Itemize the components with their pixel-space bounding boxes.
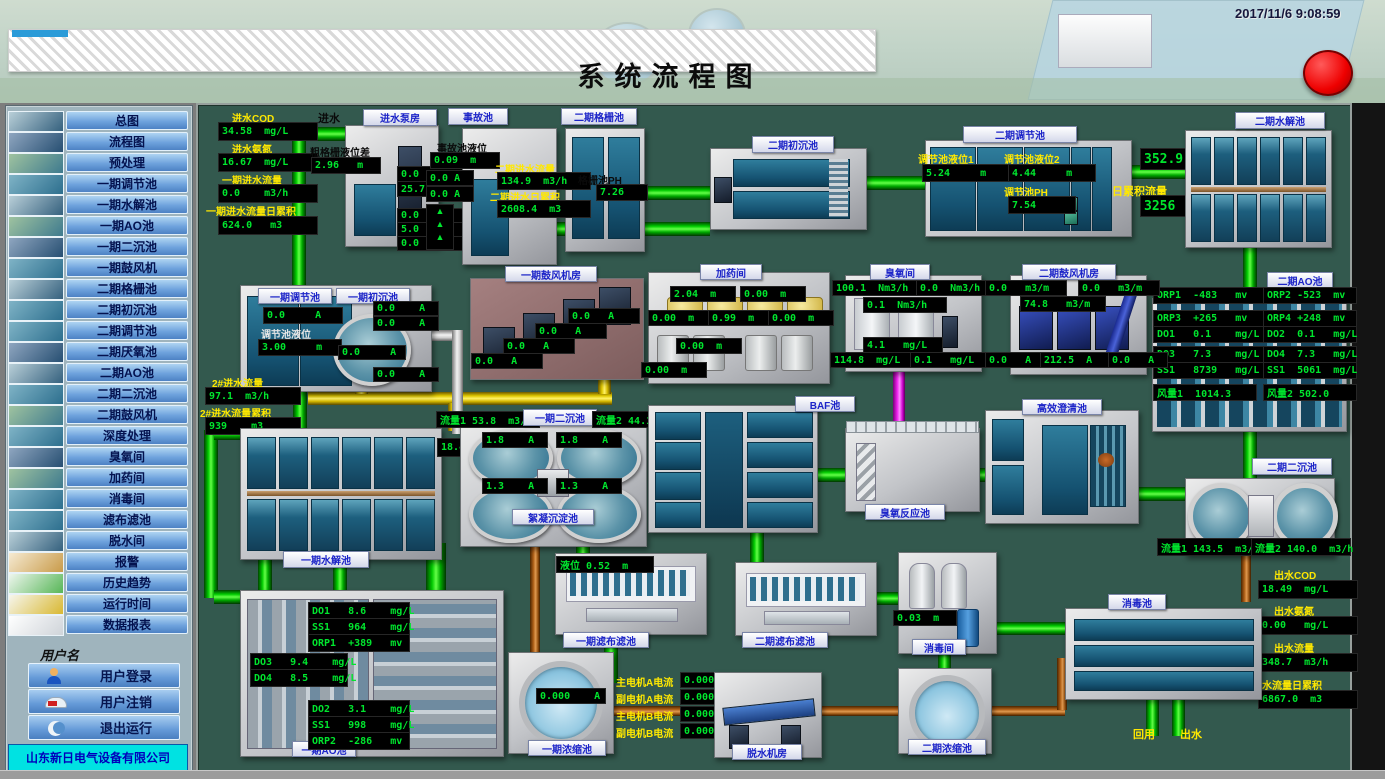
p1-presettle-amp: 0.0 A [373, 316, 439, 331]
p1-sec-amp: 1.8 A [556, 432, 622, 448]
p2-blower-amp: 212.5 A [1040, 352, 1112, 368]
ozone-flow: 0.1 Nm3/h [863, 297, 947, 313]
baf-pool[interactable] [648, 405, 818, 533]
disinfect-room-plate[interactable]: 消毒间 [912, 639, 966, 655]
p1-reg-level: 3.00 m [258, 339, 342, 356]
ozone-flow: 100.1 Nm3/h [832, 280, 922, 296]
sidebar-item-dosing-room[interactable]: 加药间 [8, 468, 188, 487]
p2-blower-flow: 0.0 m3/m [1078, 280, 1160, 296]
pipe-green [258, 558, 272, 594]
sidebar-item-p1-regulating[interactable]: 一期调节池 [8, 174, 188, 193]
sidebar-item-runtime[interactable]: 运行时间 [8, 594, 188, 613]
coarse-screen-level: 2.96 m [311, 157, 381, 174]
baf-plate[interactable]: BAF池 [795, 396, 855, 412]
p1-filter-level: 液位 0.52 m [556, 556, 654, 573]
sidebar-item-cloth-filter[interactable]: 滤布滤池 [8, 510, 188, 529]
p2-ao-orp4: ORP4 +248 mv [1263, 310, 1357, 327]
sidebar-item-data-report[interactable]: 数据报表 [8, 615, 188, 634]
motor-label: 副电机B电流 [616, 725, 673, 740]
sidebar-item-overview[interactable]: 总图 [8, 111, 188, 130]
sidebar-item-p2-grille[interactable]: 二期格栅池 [8, 279, 188, 298]
pipe-green [1243, 245, 1257, 289]
p2-blower-amp: 0.0 A [985, 352, 1045, 368]
p2-ao-orp1: ORP1 -483 mv [1153, 287, 1269, 304]
dosing-level: 2.04 m [670, 286, 736, 302]
sidebar-item-p1-ao[interactable]: 一期AO池 [8, 216, 188, 235]
p1-blower-plate[interactable]: 一期鼓风机房 [505, 266, 597, 282]
thumbnail [8, 258, 64, 279]
dosing-level: 0.99 m [708, 310, 774, 326]
pipe-green [866, 176, 928, 190]
thumbnail [8, 300, 64, 321]
p1-blower-amp: 0.0 A [503, 338, 575, 354]
p2-ao-ss2: SS1 5061 mg/L [1263, 362, 1357, 379]
sidebar-item-pretreatment[interactable]: 预处理 [8, 153, 188, 172]
sidebar-item-p1-secondary[interactable]: 一期二沉池 [8, 237, 188, 256]
motor-label: 主电机B电流 [616, 708, 673, 723]
pipe-green [990, 622, 1068, 635]
motor-label: 副电机A电流 [616, 691, 673, 706]
ozone-conc: 114.8 mg/L [830, 352, 916, 368]
thumbnail [8, 237, 64, 258]
p2-blower-flow: 0.0 m3/m [985, 280, 1067, 296]
pipe-green [204, 430, 218, 598]
ozone-room-plate[interactable]: 臭氧间 [870, 264, 930, 280]
accident-pump-status: ▲ ▲ ▲ [426, 204, 454, 250]
company-name: 山东新日电气设备有限公司 [8, 744, 188, 771]
thumbnail [8, 384, 64, 405]
user-logout-button[interactable]: 用户注销 [28, 689, 180, 714]
p1-secondary-plate[interactable]: 一期二沉池 [523, 409, 597, 426]
grille-ph-value: 7.26 [596, 184, 648, 201]
p2-cloth-filter[interactable] [735, 562, 877, 636]
thumbnail [8, 468, 64, 489]
ozone-conc: 4.1 mg/L [863, 337, 943, 353]
pipe-orange-sludge [990, 706, 1065, 716]
p2-grille-plate[interactable]: 二期格栅池 [561, 108, 637, 125]
p2-ao-plate[interactable]: 二期AO池 [1267, 272, 1333, 288]
inflow-label: 进水 [318, 110, 340, 126]
p1-ao-orp1: ORP1 +389 mv [308, 634, 410, 652]
p2-thickener-plate[interactable]: 二期浓缩池 [908, 739, 986, 755]
motor-label: 主电机A电流 [616, 674, 673, 689]
thumbnail [8, 279, 64, 300]
p1-cloth-filter-plate[interactable]: 一期滤布滤池 [563, 632, 649, 648]
thumbnail [8, 363, 64, 384]
reg-level2: 4.44 m [1008, 164, 1096, 182]
p1-blower-amp: 0.0 A [535, 323, 607, 339]
p2-sec-flow1: 流量1 143.5 m3/h [1157, 538, 1257, 556]
outlet-cod-value: 18.49 mg/L [1258, 580, 1358, 599]
thumbnail [8, 216, 64, 237]
p2-blower-flow: 74.8 m3/m [1020, 296, 1106, 312]
sidebar-item-p2-blower[interactable]: 二期鼓风机 [8, 405, 188, 424]
p1-inflow-total-value: 624.0 m3 [218, 216, 318, 235]
thumbnail [8, 615, 64, 636]
sidebar-item-p2-presettle[interactable]: 二期初沉池 [8, 300, 188, 319]
ozone-conc: 0.1 mg/L [910, 352, 990, 368]
thumbnail [8, 153, 64, 174]
reg-ph-value: 7.54 [1008, 196, 1076, 214]
pipe-orange-sludge [820, 706, 900, 716]
p2-cloth-filter-plate[interactable]: 二期滤布滤池 [742, 632, 828, 648]
dosing-level: 0.00 m [768, 310, 834, 326]
header-banner-tick [12, 30, 68, 37]
p2-regulating-plate[interactable]: 二期调节池 [963, 126, 1077, 143]
sidebar-item-p1-hydrolysis[interactable]: 一期水解池 [8, 195, 188, 214]
p1-presettle-amp: 0.0 A [373, 367, 439, 382]
thumbnail [8, 447, 64, 468]
p2-hydrolysis-plate[interactable]: 二期水解池 [1235, 112, 1325, 129]
clock: 2017/11/6 9:08:59 [1235, 6, 1385, 21]
p2-blower-plate[interactable]: 二期鼓风机房 [1022, 264, 1116, 280]
p2-ao-do2: DO2 0.1 mg/L [1263, 326, 1357, 343]
accident-level: 0.09 m [430, 152, 500, 169]
p2-hydrolysis-pool[interactable] [1185, 130, 1332, 248]
p1-blower-amp: 0.0 A [471, 353, 543, 369]
sidebar-item-dewatering[interactable]: 脱水间 [8, 531, 188, 550]
dosing-level: 0.00 m [641, 362, 707, 378]
p2-ao-orp2: ORP2 -523 mv [1263, 287, 1357, 304]
sidebar-item-alarms[interactable]: 报警 [8, 552, 188, 571]
p1-hydrolysis-pool[interactable] [240, 428, 442, 560]
scada-screen: 系统流程图 2017/11/6 9:08:59 总图 流程图 预处理 一期调节池… [0, 0, 1385, 778]
p2-inflow-total-value: 2608.4 m3 [497, 200, 591, 218]
thumbnail [8, 510, 64, 531]
p1-sec-amp: 1.3 A [556, 478, 622, 494]
p1-blower-amp: 0.0 A [568, 308, 640, 324]
p1-ao-do4: DO4 8.5 mg/L [250, 669, 348, 687]
thumbnail [8, 594, 64, 615]
p2-ao-ss1: SS1 8739 mg/L [1153, 362, 1269, 379]
disinfect-level: 0.03 m [893, 610, 957, 626]
sidebar-item-advanced-treatment[interactable]: 深度处理 [8, 426, 188, 445]
accident-pump-amp: 0.0 A [426, 186, 474, 202]
pipe-green [643, 186, 713, 200]
p1-sec-amp: 1.8 A [482, 432, 548, 448]
outlet-flow-value: 348.7 m3/h [1258, 653, 1358, 672]
exit-run-icon [43, 719, 73, 736]
disinfect-pool-plate[interactable]: 消毒池 [1108, 594, 1166, 610]
sidebar-item-disinfect-room[interactable]: 消毒间 [8, 489, 188, 508]
p1-presettle-amp: 0.0 A [338, 345, 406, 360]
p1-reg-amp: 0.0 A [263, 307, 343, 324]
p1-thickener-amp: 0.000 A [536, 688, 606, 704]
thumbnail [8, 405, 64, 426]
p2-presettle-pool[interactable] [710, 148, 867, 230]
p1-regulating-plate[interactable]: 一期调节池 [258, 288, 332, 304]
username-label: 用户名 [40, 645, 79, 664]
header-building-decor [1058, 14, 1152, 68]
flocculation-plate[interactable]: 絮凝沉淀池 [512, 509, 594, 525]
thumbnail [8, 489, 64, 510]
p2-ao-do4: DO4 7.3 mg/L [1263, 346, 1357, 363]
dosing-level: 0.00 m [740, 286, 806, 302]
accident-pump-amp: 0.0 A [426, 170, 474, 186]
user-login-icon [43, 667, 73, 684]
pipe-magenta-ozone [893, 368, 905, 428]
sidebar-item-p2-secondary[interactable]: 二期二沉池 [8, 384, 188, 403]
thumbnail [8, 573, 64, 594]
user-login-button[interactable]: 用户登录 [28, 663, 180, 688]
outlet-nh3-value: 0.00 mg/L [1258, 616, 1358, 635]
pipe-orange-sludge [530, 545, 540, 657]
p1-inflow-value: 0.0 m3/h [218, 184, 318, 203]
thumbnail [8, 342, 64, 363]
pump-house-plate[interactable]: 进水泵房 [363, 109, 437, 126]
p2-ao-air2: 风量2 502.0 [1263, 384, 1357, 401]
thumbnail [8, 195, 64, 216]
p2-blower-amp: 0.0 A [1108, 352, 1168, 368]
p2-ao-air1: 风量1 1014.3 [1153, 384, 1257, 401]
sidebar-item-ozone-room[interactable]: 臭氧间 [8, 447, 188, 466]
p2-secondary-plate[interactable]: 二期二沉池 [1252, 458, 1332, 475]
sidebar-item-history-trend[interactable]: 历史趋势 [8, 573, 188, 592]
p2-ao-do1: DO1 0.1 mg/L [1153, 326, 1269, 343]
dosing-level: 0.00 m [676, 338, 742, 354]
thumbnail [8, 531, 64, 552]
flow2-value: 97.1 m3/h [205, 387, 301, 405]
exit-run-button[interactable]: 退出运行 [28, 715, 180, 740]
dosing-level: 0.00 m [648, 310, 714, 326]
reuse-label: 回用 [1133, 726, 1155, 742]
sidebar-item-p2-anaerobic[interactable]: 二期厌氧池 [8, 342, 188, 361]
accident-pool-plate[interactable]: 事故池 [448, 108, 508, 125]
reg-level1: 5.24 m [922, 164, 1010, 182]
p1-presettle-amp: 0.0 A [373, 301, 439, 316]
thumbnail [8, 174, 64, 195]
thumbnail [8, 132, 64, 153]
ozone-reactor-plate[interactable]: 臭氧反应池 [865, 504, 945, 520]
dosing-room-plate[interactable]: 加药间 [700, 264, 762, 280]
sidebar-menu: 总图 流程图 预处理 一期调节池 一期水解池 一期AO池 一期二沉池 一期鼓风机… [8, 111, 188, 634]
thumbnail [8, 426, 64, 447]
clarifier-pool[interactable] [985, 410, 1139, 524]
p1-thickener-plate[interactable]: 一期浓缩池 [528, 740, 606, 756]
p2-inflow-value: 134.9 m3/h [497, 172, 591, 190]
p1-hydrolysis-plate[interactable]: 一期水解池 [283, 551, 369, 568]
thumbnail [8, 552, 64, 573]
sidebar-item-p1-blower[interactable]: 一期鼓风机 [8, 258, 188, 277]
sidebar-item-flow-diagram[interactable]: 流程图 [8, 132, 188, 151]
alarm-indicator-button[interactable] [1303, 50, 1353, 96]
p2-ao-do3: DO3 7.3 mg/L [1153, 346, 1269, 363]
p1-ao-orp2: ORP2 -286 mv [308, 732, 410, 750]
sidebar-item-p2-ao[interactable]: 二期AO池 [8, 363, 188, 382]
pipe-orange-sludge [1241, 556, 1251, 602]
outfall-label: 出水 [1180, 726, 1202, 742]
p2-ao-orp3: ORP3 +265 mv [1153, 310, 1269, 327]
user-logout-icon [43, 693, 73, 710]
ozone-reactor-pool[interactable] [845, 428, 980, 512]
p2-sec-flow2: 流量2 140.0 m3/h [1251, 538, 1351, 556]
p2-presettle-plate[interactable]: 二期初沉池 [752, 136, 834, 153]
sidebar-item-p2-regulating[interactable]: 二期调节池 [8, 321, 188, 340]
thumbnail [8, 321, 64, 342]
disinfect-pool[interactable] [1065, 608, 1262, 700]
inlet-cod-value: 34.58 mg/L [218, 122, 318, 141]
p1-sec-amp: 1.3 A [482, 478, 548, 494]
dewatering-plate[interactable]: 脱水机房 [732, 744, 802, 760]
outlet-total-value: 6867.0 m3 [1258, 690, 1358, 709]
page-title: 系统流程图 [520, 55, 820, 94]
thumbnail [8, 111, 64, 132]
clarifier-plate[interactable]: 高效澄清池 [1022, 399, 1102, 415]
inlet-nh3-value: 16.67 mg/L [218, 153, 318, 172]
